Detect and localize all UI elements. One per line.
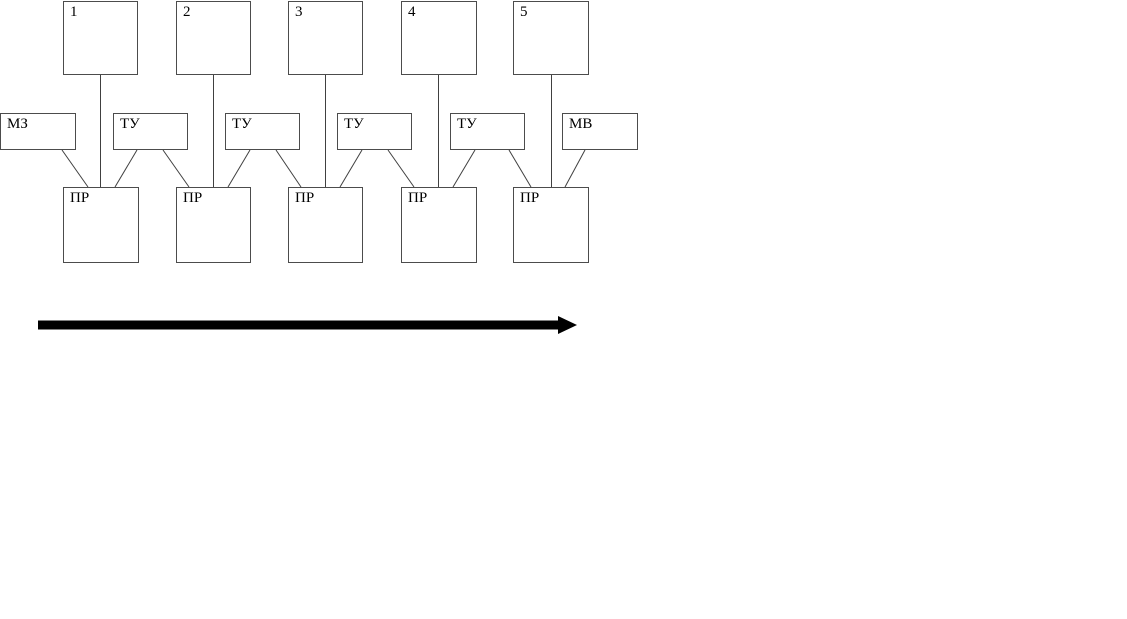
bottom-box-pr-5-label: ПР — [514, 188, 588, 207]
diagonal-tu4-pr4 — [453, 150, 475, 187]
diagonal-tu1-pr1 — [115, 150, 137, 187]
middle-box-tu-2-label: ТУ — [226, 114, 299, 133]
middle-box-tu-1-label: ТУ — [114, 114, 187, 133]
top-box-2-label: 2 — [177, 2, 250, 21]
top-box-4: 4 — [401, 1, 477, 75]
bottom-box-pr-3: ПР — [288, 187, 363, 263]
middle-box-mz: МЗ — [0, 113, 76, 150]
top-box-3: 3 — [288, 1, 363, 75]
top-box-1-label: 1 — [64, 2, 137, 21]
diagonal-tu2-pr3 — [276, 150, 301, 187]
diagonal-mv-pr5 — [565, 150, 585, 187]
timeline-arrow — [38, 316, 577, 334]
middle-box-tu-3: ТУ — [337, 113, 412, 150]
bottom-box-pr-2-label: ПР — [177, 188, 250, 207]
middle-box-tu-4: ТУ — [450, 113, 525, 150]
top-box-2: 2 — [176, 1, 251, 75]
middle-box-tu-1: ТУ — [113, 113, 188, 150]
middle-box-mv-label: МВ — [563, 114, 637, 133]
diagonal-mz-pr1 — [62, 150, 88, 187]
bottom-box-pr-1-label: ПР — [64, 188, 138, 207]
diagonal-tu2-pr2 — [228, 150, 250, 187]
bottom-box-pr-5: ПР — [513, 187, 589, 263]
top-box-5-label: 5 — [514, 2, 588, 21]
bottom-box-pr-4-label: ПР — [402, 188, 476, 207]
middle-box-mv: МВ — [562, 113, 638, 150]
bottom-box-pr-2: ПР — [176, 187, 251, 263]
diagonal-tu3-pr3 — [340, 150, 362, 187]
diagonal-tu3-pr4 — [388, 150, 414, 187]
bottom-box-pr-4: ПР — [401, 187, 477, 263]
diagram-canvas: 1 2 3 4 5 МЗ ТУ ТУ ТУ ТУ МВ ПР ПР ПР ПР … — [0, 0, 1127, 619]
middle-box-mz-label: МЗ — [1, 114, 75, 133]
middle-box-tu-4-label: ТУ — [451, 114, 524, 133]
top-box-1: 1 — [63, 1, 138, 75]
middle-box-tu-2: ТУ — [225, 113, 300, 150]
bottom-box-pr-1: ПР — [63, 187, 139, 263]
top-box-3-label: 3 — [289, 2, 362, 21]
middle-box-tu-3-label: ТУ — [338, 114, 411, 133]
top-box-5: 5 — [513, 1, 589, 75]
diagonal-tu4-pr5 — [509, 150, 531, 187]
diagonal-tu1-pr2 — [163, 150, 189, 187]
connector-lines — [0, 0, 1127, 619]
top-box-4-label: 4 — [402, 2, 476, 21]
bottom-box-pr-3-label: ПР — [289, 188, 362, 207]
